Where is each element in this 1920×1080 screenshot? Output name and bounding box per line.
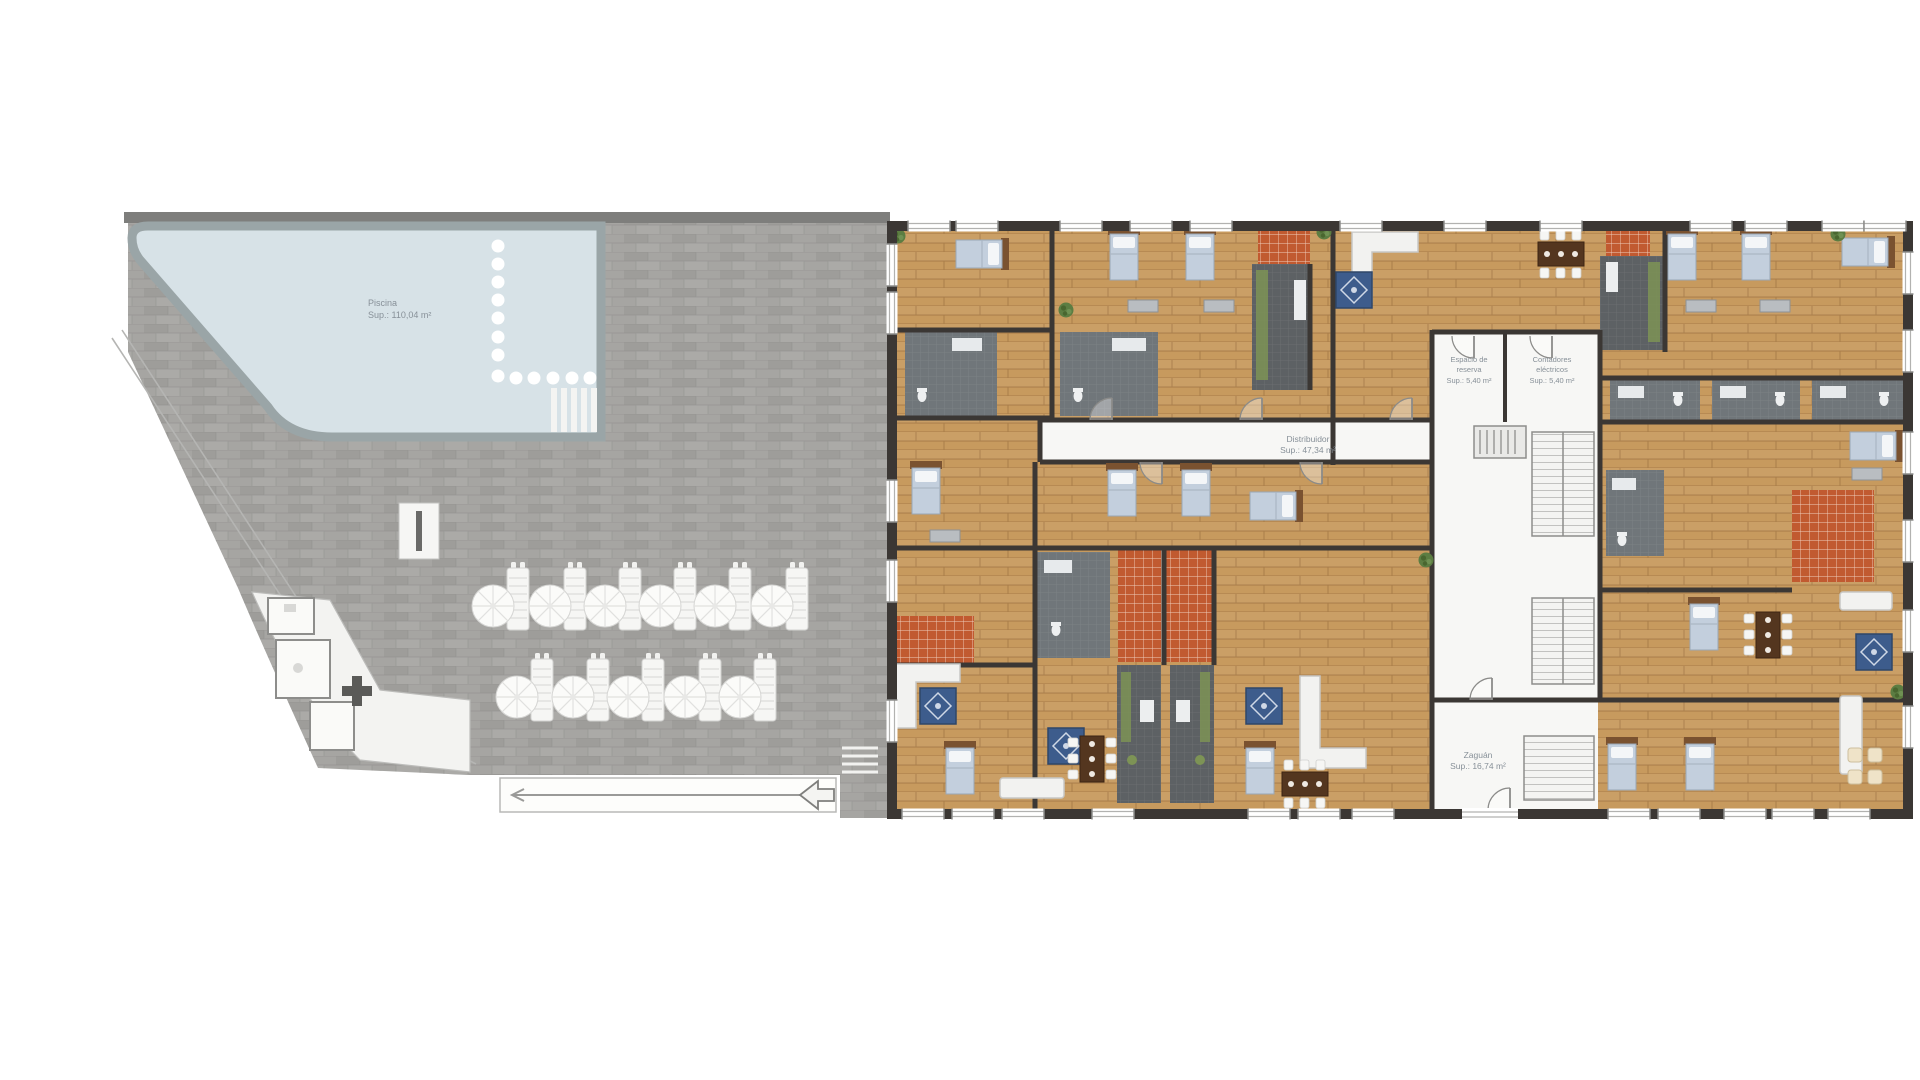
pool-label-area: Sup.: 110,04 m²	[368, 310, 431, 320]
label-espacio-area: Sup.: 5,40 m²	[1446, 376, 1492, 385]
plant-icon	[1059, 303, 1074, 318]
bed	[944, 741, 976, 794]
label-espacio-line2: reserva	[1456, 365, 1482, 374]
bed	[1740, 227, 1772, 280]
stairs	[1524, 432, 1594, 800]
bathroom	[1036, 552, 1110, 658]
terrace-boundary-wall	[124, 212, 890, 223]
label-contadores-line2: eléctricos	[1536, 365, 1568, 374]
bed	[1244, 741, 1276, 794]
label-zaguan-area: Sup.: 16,74 m²	[1450, 761, 1506, 771]
terrace-utility-box	[399, 503, 439, 559]
bed	[1180, 463, 1212, 516]
bed	[910, 461, 942, 514]
terrace: Piscina Sup.: 110,04 m²	[112, 212, 890, 818]
bed	[1250, 490, 1303, 522]
patio-center-left	[1118, 548, 1162, 662]
kitchen-top-center	[1252, 264, 1310, 390]
rug	[1048, 728, 1084, 764]
rug	[1336, 272, 1372, 308]
floor-plan-canvas: Piscina Sup.: 110,04 m²	[0, 0, 1920, 1080]
bed	[1106, 463, 1138, 516]
patio-right	[1792, 490, 1874, 582]
rug	[1856, 634, 1892, 670]
patio-top-right	[1606, 228, 1650, 256]
pool-label-title: Piscina	[368, 298, 397, 308]
bed	[1842, 236, 1895, 268]
plant-icon	[1419, 553, 1434, 568]
bed	[956, 238, 1009, 270]
patio-center-right	[1166, 548, 1214, 662]
access-ramp	[500, 778, 836, 812]
label-zaguan-title: Zaguán	[1464, 750, 1493, 760]
bathroom	[905, 332, 997, 416]
bathroom	[1610, 380, 1700, 420]
floor-plan-page: Piscina Sup.: 110,04 m²	[0, 0, 1920, 1080]
rug	[920, 688, 956, 724]
bed	[1688, 597, 1720, 650]
bed	[1850, 430, 1903, 462]
main-entrance	[1462, 808, 1518, 820]
kitchen-strip-right	[1170, 665, 1214, 803]
bed	[1606, 737, 1638, 790]
label-distribuidor-title: Distribuidor	[1287, 434, 1330, 444]
kitchen-top-right	[1600, 256, 1666, 350]
wood-floor-texture	[888, 222, 1912, 818]
bed	[1184, 227, 1216, 280]
bathroom	[1812, 380, 1904, 420]
bathroom	[1606, 470, 1664, 556]
bed	[1666, 227, 1698, 280]
rug	[1246, 688, 1282, 724]
label-contadores-area: Sup.: 5,40 m²	[1529, 376, 1575, 385]
elevator-machine	[1474, 426, 1526, 458]
patio-top-center	[1258, 228, 1310, 268]
bed	[1684, 737, 1716, 790]
bathroom	[1712, 380, 1800, 420]
staircase	[1524, 736, 1594, 800]
building: Espacio de reserva Sup.: 5,40 m² Contado…	[887, 221, 1914, 821]
sofa	[1000, 778, 1064, 798]
patio-left	[896, 616, 974, 664]
dining-table	[1538, 230, 1584, 278]
dining-table	[1282, 760, 1328, 808]
sofa	[1840, 592, 1892, 610]
dining-table	[1068, 736, 1116, 782]
corridor-distribuidor	[1040, 422, 1432, 462]
kitchen-strip-left	[1117, 665, 1161, 803]
dining-table	[1744, 612, 1792, 658]
label-contadores-line1: Contadores	[1533, 355, 1572, 364]
label-distribuidor-area: Sup.: 47,34 m²	[1280, 445, 1336, 455]
bed	[1108, 227, 1140, 280]
label-espacio-line1: Espacio de	[1450, 355, 1487, 364]
